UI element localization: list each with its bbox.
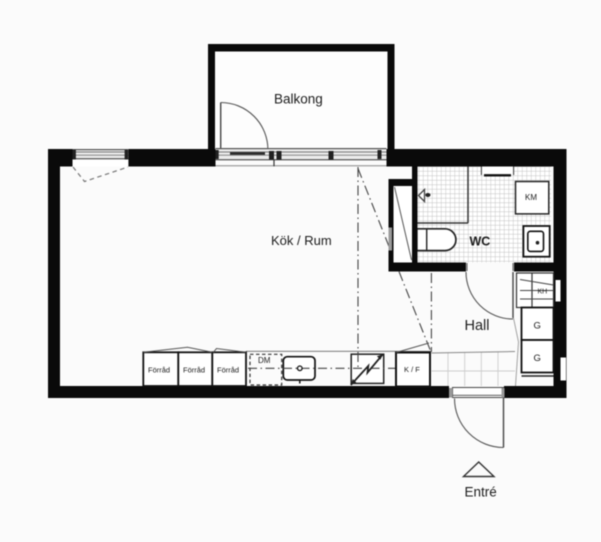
svg-text:Entré: Entré: [465, 485, 497, 500]
svg-text:Förråd: Förråd: [217, 366, 239, 375]
svg-text:Balkong: Balkong: [274, 92, 323, 107]
svg-text:Kök / Rum: Kök / Rum: [271, 233, 332, 248]
svg-text:K / F: K / F: [404, 365, 420, 374]
svg-text:WC: WC: [470, 235, 491, 249]
svg-text:KH: KH: [538, 289, 548, 296]
svg-text:KM: KM: [525, 193, 537, 202]
svg-text:G: G: [534, 321, 541, 332]
svg-text:Hall: Hall: [465, 318, 490, 334]
svg-text:Förråd: Förråd: [148, 366, 170, 375]
svg-text:G: G: [534, 353, 541, 364]
svg-text:DM: DM: [258, 356, 271, 365]
svg-text:Förråd: Förråd: [183, 366, 205, 375]
